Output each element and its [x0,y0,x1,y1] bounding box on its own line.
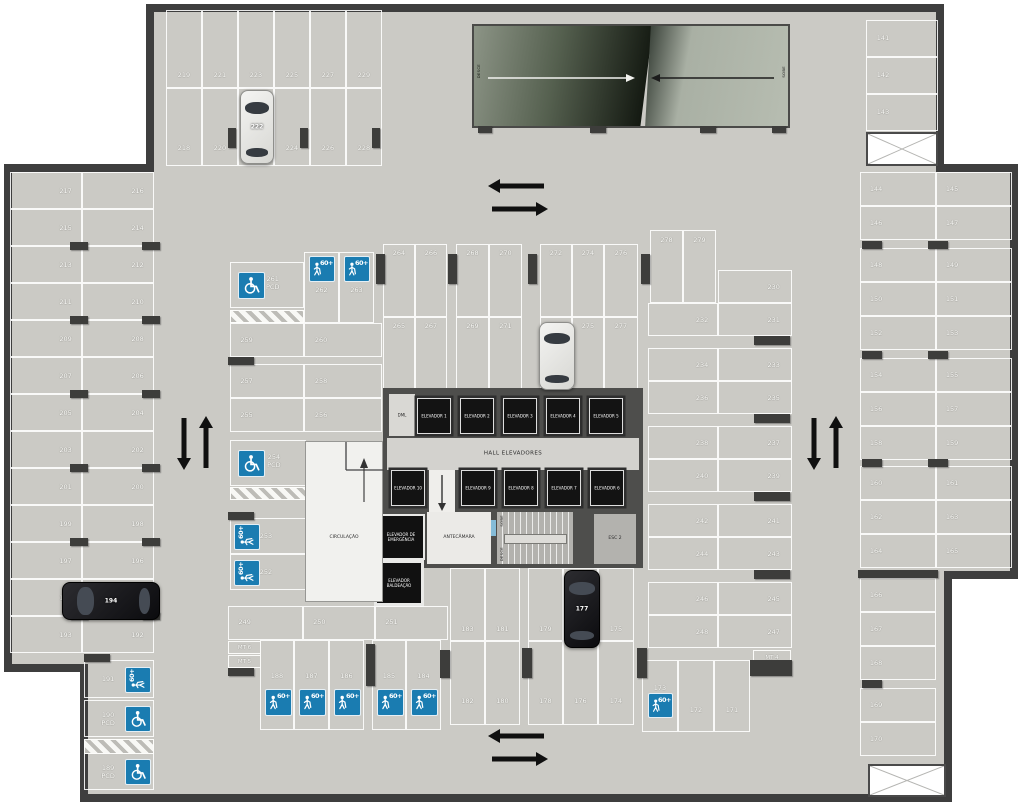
parking-stall: 261 PCD [230,262,304,308]
stall-number: 260 [315,336,327,344]
stall-number: 181 [496,625,508,633]
wall-pillar [228,668,254,676]
stall-number: 193 [59,630,71,638]
stall-number: 212 [131,260,143,268]
wall-pillar [448,254,457,284]
parking-stall: 214 [82,209,154,246]
stall-number: 154 [870,371,882,379]
stall-number: 201 [59,482,71,490]
sixty-plus-icon: 60+ [649,694,672,717]
stall-number: 258 [315,377,327,385]
stall-number: 209 [59,334,71,342]
stall-number: 277 [615,322,627,330]
stall-number: 189 PCD [101,763,114,779]
stall-number: 245 [768,594,780,602]
parking-stall: 169 [860,688,936,722]
wall-pillar [228,512,254,520]
parking-stall: 146 [860,206,936,240]
parking-stall: 238 [648,426,718,459]
parking-stall: 251 [375,606,448,640]
accessibility-sign-pcd [125,706,151,732]
hatched-zone [230,487,306,500]
elevator-8: ELEVADOR 8 [504,470,538,506]
stall-number: 231 [768,315,780,323]
parking-stall: 157 [936,392,1012,426]
stair-handrail [504,534,567,544]
parking-stall: 211 [10,283,82,320]
car-rear-window [545,375,569,383]
accessibility-sign-60plus: 60+ [299,689,326,716]
dml-label: DML [398,412,407,417]
parking-stall: 271 [489,317,522,390]
parking-stall: 206 [82,357,154,394]
elevator-4: ELEVADOR 4 [546,398,580,434]
traffic-arrows-top [486,176,550,220]
wall-pillar [70,390,88,398]
staircase: SOBE DESCE [497,512,573,564]
stall-number: 275 [582,322,594,330]
mt6-box: MT 6 [228,641,261,654]
parking-stall: 202 [82,431,154,468]
stall-number: 224 [286,144,298,152]
stall-number: 232 [696,315,708,323]
accessibility-sign-60plus: 60+ [648,693,673,718]
sixty-plus-text: 60+ [355,259,368,267]
sixty-plus-text: 60+ [658,696,671,704]
stall-number: 253 [260,532,272,540]
stall-number: 240 [696,471,708,479]
stall-number: 184 [417,672,429,680]
wall-pillar [928,241,948,249]
wall-pillar [637,648,647,678]
sixty-plus-icon: 60+ [235,525,259,549]
traffic-arrows-bottom [486,726,550,770]
emergency-elevator-label: ELEVADOR DE EMERGÊNCIA [387,532,415,542]
wall-pillar [70,316,88,324]
void-area-bottom [868,764,946,797]
stall-number: 254 PCD [267,453,280,469]
parking-stall: 170 [860,722,936,756]
stall-number: 271 [499,322,511,330]
mt5-box: MT 5 [228,655,261,668]
void-area-top [866,132,938,166]
wall-pillar [641,254,650,284]
parking-stall: 221 [202,10,238,88]
parking-stall: 155 [936,358,1012,392]
parking-stall: 257 [230,364,304,398]
wall-pillar [366,644,375,686]
hatched-zone [230,310,304,323]
car: 194 [62,582,160,620]
wall-pillar [142,390,160,398]
parking-stall: 205 [10,394,82,431]
parking-stall: 268 [456,244,489,317]
parking-stall: 18860+ [260,640,294,730]
elevator-4-label: ELEVADOR 4 [548,413,579,418]
elevator-5: ELEVADOR 5 [589,398,623,434]
stall-number: 185 [383,672,395,680]
sixty-plus-text: 60+ [311,692,324,700]
parking-stall: 171 [714,660,750,732]
emergency-line-2: EMERGÊNCIA [387,537,415,542]
parking-stall: 143 [866,94,938,131]
elevator-10: ELEVADOR 10 [391,470,425,506]
sixty-plus-text: 60+ [237,526,245,539]
elevator-hall-label: HALL ELEVADORES [484,450,542,457]
elevator-3-label: ELEVADOR 3 [505,413,536,418]
stall-number: 204 [131,408,143,416]
stall-number: 169 [870,701,882,709]
stall-number: 174 [610,697,622,705]
parking-stall: 18760+ [294,640,329,730]
traffic-arrows-right [802,414,848,472]
emergency-elevator: ELEVADOR DE EMERGÊNCIA [377,514,425,560]
stall-number: 162 [870,513,882,521]
accessibility-sign-60plus: 60+ [377,689,404,716]
stall-number: 255 [240,411,252,419]
ramp-arrows [474,26,792,130]
stall-number: 270 [499,249,511,257]
stall-number: 180 [496,697,508,705]
parking-stall: 210 [82,283,154,320]
parking-stall: 270 [489,244,522,317]
stall-number: 200 [131,482,143,490]
accessibility-sign-60plus: 60+ [234,560,260,586]
wall-pillar [772,126,786,133]
stall-number: 179 [539,625,551,633]
stall-number: 233 [768,360,780,368]
sixty-plus-text: 60+ [277,692,290,700]
sixty-plus-text: 60+ [237,562,245,575]
stall-number: 190 PCD [101,710,114,726]
stall-number: 144 [870,185,882,193]
parking-stall: 25360+ [230,518,308,554]
wall-pillar [522,648,532,678]
wall-pillar [70,242,88,250]
transfer-line-2: BALDEAÇÃO [387,583,412,588]
stall-number: 244 [696,549,708,557]
stall-number: 216 [131,186,143,194]
stall-number: 227 [322,71,334,79]
stall-number: 230 [768,282,780,290]
circulation-label: CIRCULAÇÃO [329,535,358,541]
stall-number: 265 [393,322,405,330]
stall-number: 143 [877,108,889,116]
stall-number: 220 [214,144,226,152]
door-mark-1 [491,520,496,536]
parking-stall: 176 [563,641,598,725]
parking-stall: 178 [528,641,563,725]
parking-stall: 241 [718,504,792,537]
parking-stall: 179 [528,568,563,641]
stall-number: 168 [870,659,882,667]
parking-stall: 240 [648,459,718,492]
stall-number: 153 [946,329,958,337]
stair-down-arrow [429,470,455,514]
parking-stall: 274 [572,244,604,317]
elevator-6-label: ELEVADOR 6 [592,485,623,490]
elevator-8-label: ELEVADOR 8 [506,485,537,490]
parking-stall: 258 [304,364,382,398]
stall-number: 191 [102,675,114,683]
parking-stall: 189 PCD [84,753,154,790]
parking-stall: 248 [648,615,718,648]
stall-number: 268 [466,249,478,257]
stall-number: 202 [131,445,143,453]
elevator-10-label: ELEVADOR 10 [393,485,424,490]
parking-stall: 163 [936,500,1012,534]
parking-stall: 203 [10,431,82,468]
stall-number: 249 [238,618,250,626]
parking-stall: 18460+ [406,640,441,730]
wall-pillar [590,126,606,133]
parking-stall: 160 [860,466,936,500]
elevator-7-label: ELEVADOR 7 [549,485,580,490]
parking-stall: 165 [936,534,1012,568]
car-windshield [77,587,93,614]
ramp: DESCE SOBE [472,24,790,128]
parking-stall: 142 [866,57,938,94]
car: 177 [564,570,600,648]
stall-number: 182 [461,697,473,705]
elevator-2-label: ELEVADOR 2 [462,413,493,418]
car-windshield [569,582,595,595]
stall-number: 235 [768,393,780,401]
parking-stall: 161 [936,466,1012,500]
accessibility-sign-60plus: 60+ [411,689,438,716]
ramp-sobe-label: SOBE [781,66,786,78]
wall-pillar [70,538,88,546]
parking-stall: 19160+ [84,660,154,698]
parking-stall: 151 [936,282,1012,316]
parking-stall: 244 [648,537,718,570]
parking-stall: 156 [860,392,936,426]
wall-pillar [228,357,254,365]
stall-number: 214 [131,223,143,231]
stall-number: 243 [768,549,780,557]
accessibility-sign-60plus: 60+ [334,689,361,716]
stall-number: 199 [59,519,71,527]
parking-stall: 193 [10,616,82,653]
wall-pillar [754,336,790,345]
stall-number: 155 [946,371,958,379]
parking-stall: 234 [648,348,718,381]
accessibility-sign-pcd [238,450,265,477]
wall-pillar [70,464,88,472]
parking-stall: 269 [456,317,489,390]
wall-pillar [862,459,882,467]
stall-number: 152 [870,329,882,337]
parking-stall: 233 [718,348,792,381]
car-windshield [544,333,570,344]
parking-stall: 235 [718,381,792,414]
stall-number: 173 [654,684,666,692]
parking-stall: 276 [604,244,638,317]
parking-stall: 25260+ [230,554,308,590]
elevator-9-label: ELEVADOR 9 [463,485,494,490]
wall-pillar [142,242,160,250]
stall-number: 226 [322,144,334,152]
parking-stall: 275 [572,317,604,390]
accessibility-sign-60plus: 60+ [265,689,292,716]
stall-number: 148 [870,261,882,269]
parking-stall: 149 [936,248,1012,282]
stall-number: 239 [768,471,780,479]
parking-stall: 207 [10,357,82,394]
stall-number: 192 [131,630,143,638]
parking-stall: 239 [718,459,792,492]
stall-number: 242 [696,516,708,524]
stall-number: 187 [305,672,317,680]
parking-stall: 167 [860,612,936,646]
parking-stall: 219 [166,10,202,88]
parking-stall: 264 [383,244,415,317]
sixty-plus-icon: 60+ [126,668,150,692]
elevator-9: ELEVADOR 9 [461,470,495,506]
stall-number: 164 [870,547,882,555]
parking-stall: 216 [82,172,154,209]
stall-number: 241 [768,516,780,524]
stall-number: 274 [582,249,594,257]
stall-number: 272 [550,249,562,257]
stair-shaft [429,470,455,514]
stall-number: 246 [696,594,708,602]
elevator-1-label: ELEVADOR 1 [419,413,450,418]
parking-stall: 26360+ [339,252,374,323]
stall-number: 257 [240,377,252,385]
car: 222 [240,90,274,164]
car [539,322,575,390]
parking-stall: 228 [346,88,382,166]
accessibility-sign-pcd [125,759,151,785]
wall-pillar [928,351,948,359]
wall-pillar [862,351,882,359]
antechamber-label: ANTECÂMARA [443,535,474,541]
parking-stall: 144 [860,172,936,206]
car-stall-number: 222 [251,124,264,131]
wall-pillar [700,126,716,133]
stall-number: 213 [59,260,71,268]
parking-stall: 204 [82,394,154,431]
wall-pillar [440,650,450,678]
stall-number: 183 [461,625,473,633]
ramp-desce-label: DESCE [476,64,481,78]
parking-stall: 249 [228,606,303,640]
sixty-plus-icon: 60+ [300,690,325,715]
wall-pillar [142,464,160,472]
parking-stall: 209 [10,320,82,357]
sixty-plus-icon: 60+ [335,690,360,715]
stall-number: 237 [768,438,780,446]
circulation-room: CIRCULAÇÃO [305,441,383,602]
car-windshield [245,102,269,114]
parking-stall: 162 [860,500,936,534]
parking-stall: 254 PCD [230,440,306,486]
parking-stall: 208 [82,320,154,357]
stall-number: 263 [350,286,362,294]
parking-stall: 166 [860,578,936,612]
stairs-desce-label: DESCE [499,547,504,561]
stall-number: 252 [260,568,272,576]
accessibility-sign-60plus: 60+ [309,256,335,282]
sixty-plus-text: 60+ [128,669,136,682]
stall-number: 142 [877,71,889,79]
wall-pillar [84,654,110,662]
wall-pillar [754,570,790,579]
parking-stall: 199 [10,505,82,542]
parking-stall: 225 [274,10,310,88]
stall-number: 215 [59,223,71,231]
sixty-plus-icon: 60+ [378,690,403,715]
parking-stall: 267 [415,317,447,390]
parking-stall: 180 [485,641,520,725]
accessibility-sign-60plus: 60+ [125,667,151,693]
elevator-2: ELEVADOR 2 [460,398,494,434]
stall-number: 262 [315,286,327,294]
wall-pillar [376,254,385,284]
car-stall-number: 177 [576,606,589,613]
stall-number: 250 [313,618,325,626]
stall-number: 229 [358,71,370,79]
parking-stall: 272 [540,244,572,317]
parking-stall: 159 [936,426,1012,460]
wall-pillar [754,492,790,501]
sixty-plus-text: 60+ [423,692,436,700]
traffic-arrows-left [172,414,218,472]
parking-stall: 158 [860,426,936,460]
stall-number: 210 [131,297,143,305]
parking-stall: 148 [860,248,936,282]
parking-stall: 265 [383,317,415,390]
stall-number: 160 [870,479,882,487]
parking-stall: 245 [718,582,792,615]
stall-number: 248 [696,627,708,635]
car-rear-window [570,631,594,640]
stall-number: 269 [466,322,478,330]
parking-stall: 201 [10,468,82,505]
parking-stall: 256 [304,398,382,432]
stall-number: 171 [726,706,738,714]
wall-pillar [528,254,537,284]
stall-number: 225 [286,71,298,79]
stall-number: 159 [946,439,958,447]
hatched-zone [84,739,154,754]
sixty-plus-icon: 60+ [412,690,437,715]
parking-stall: 243 [718,537,792,570]
stall-number: 267 [425,322,437,330]
stall-number: 279 [693,236,705,244]
elevator-5-label: ELEVADOR 5 [591,413,622,418]
parking-stall: 266 [415,244,447,317]
stall-number: 161 [946,479,958,487]
stall-number: 264 [393,249,405,257]
sixty-plus-text: 60+ [346,692,359,700]
parking-stall: 183 [450,568,485,641]
stall-number: 266 [425,249,437,257]
stall-number: 146 [870,219,882,227]
stairs-sobe-label: SOBE [499,515,504,527]
parking-stall: 168 [860,646,936,680]
stall-number: 205 [59,408,71,416]
parking-stall: 229 [346,10,382,88]
stall-number: 145 [946,185,958,193]
parking-stall: 236 [648,381,718,414]
stall-number: 228 [358,144,370,152]
stall-number: 217 [59,186,71,194]
stall-number: 163 [946,513,958,521]
parking-stall: 147 [936,206,1012,240]
parking-stall: 172 [678,660,714,732]
